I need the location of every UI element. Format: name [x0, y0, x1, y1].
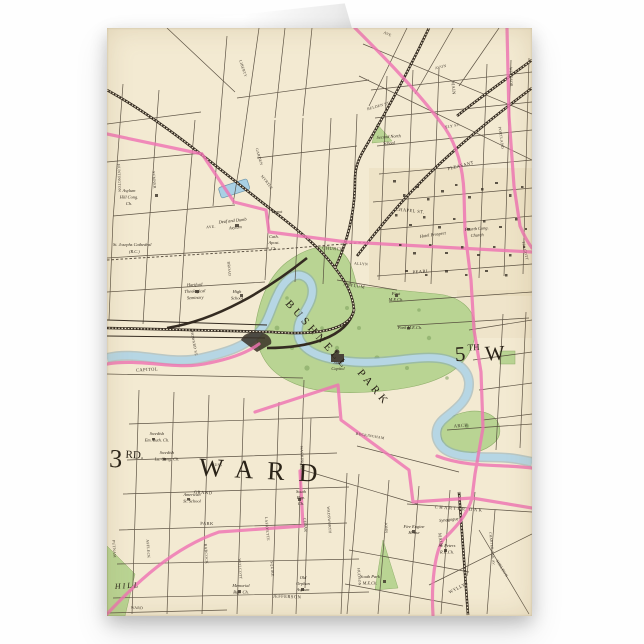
place-seminary-3: Seminary	[187, 295, 204, 301]
place-memorial-1: Memorial	[231, 583, 250, 588]
hartford-vintage-map: PEARL MAIN MAIN ASYLUM CHURCH ALLYN CHAP…	[107, 28, 532, 616]
place-swedish1-2: Em. Luth. Ch.	[144, 438, 170, 443]
place-american-2: St. School	[183, 499, 201, 504]
place-second-north-2: School	[383, 140, 396, 146]
street-label-windsor: WINDSOR	[509, 67, 514, 87]
place-cath-apost-3: Ch.	[271, 246, 277, 251]
place-first-me-2: M.E.Ch.	[388, 297, 404, 302]
place-high-school-2: School	[231, 296, 244, 301]
place-high-school-1: High	[232, 289, 243, 294]
street-label-main-top: MAIN	[451, 81, 457, 95]
label-5th-ward-suffix: TH	[467, 342, 480, 353]
place-swedish1-1: Swedish	[150, 431, 165, 436]
place-asylum-hill-1: Asylum	[122, 188, 136, 193]
street-label-arch: ARCH	[454, 422, 469, 428]
place-swedish2-2: Lu. Cong. Ch.	[154, 457, 180, 462]
place-park-me: Park M.E.Ch.	[397, 325, 422, 330]
street-label-park: PARK	[200, 521, 214, 526]
label-hill: HILL	[114, 580, 141, 591]
label-3rd-ward-number: 3	[109, 444, 123, 474]
place-fire-engine-1: Fire Engine	[403, 524, 425, 529]
place-south-bap-1: South	[296, 489, 307, 494]
place-st-josephs-1: St. Josephs Cathedral	[113, 242, 152, 247]
place-orphan-1: Old	[300, 575, 307, 580]
place-south-bap-2: Bap.	[297, 495, 305, 500]
place-seminary-2: Theological	[184, 288, 206, 294]
label-5th-ward-word: W	[484, 341, 505, 366]
place-memorial-2: Bap. Ch.	[233, 590, 249, 595]
place-st-peters-1: St. Peters	[439, 543, 456, 548]
place-south-park-1: South Park	[360, 574, 381, 579]
place-swedish2-1: Swedish	[160, 450, 175, 455]
label-5th-ward-number: 5	[454, 342, 466, 367]
place-seminary-1: Hartford	[186, 282, 203, 288]
place-cath-apost-2: Apost.	[267, 240, 279, 245]
street-label-jefferson: JEFFERSON	[273, 594, 302, 600]
place-south-park-2: M.E.Ch.	[362, 581, 378, 586]
place-asylum-hill-2: Hill Cong.	[119, 195, 139, 200]
place-st-peters-2: R.C.Ch.	[439, 550, 454, 555]
place-fire-engine-2: House	[407, 530, 419, 535]
place-cath-apost-1: Cath.	[269, 234, 279, 239]
place-orphan-3: Asylum	[296, 587, 310, 592]
product-mockup-scene: PEARL MAIN MAIN ASYLUM CHURCH ALLYN CHAP…	[0, 0, 644, 644]
place-south-bap-3: Ch.	[298, 501, 304, 506]
place-orphan-2: Orphan	[296, 581, 310, 586]
street-label-john: JOHN	[384, 522, 389, 533]
place-american-1: American	[182, 492, 201, 497]
street-label-ward: WARD	[131, 606, 144, 610]
place-st-josephs-2: (R.C.)	[129, 249, 140, 254]
place-first-me-1: First	[391, 291, 401, 296]
greeting-card-front[interactable]: PEARL MAIN MAIN ASYLUM CHURCH ALLYN CHAP…	[107, 28, 532, 616]
place-depot: Depot	[271, 209, 284, 214]
place-fourth-church-2: Church	[470, 232, 484, 238]
street-label-ave-asylum: AVE.	[206, 225, 216, 230]
card-back-panel	[110, 2, 352, 29]
label-3rd-ward-suffix: RD.	[125, 449, 144, 462]
place-asylum-hill-3: Ch.	[126, 201, 132, 206]
downtown-tint	[369, 168, 532, 296]
